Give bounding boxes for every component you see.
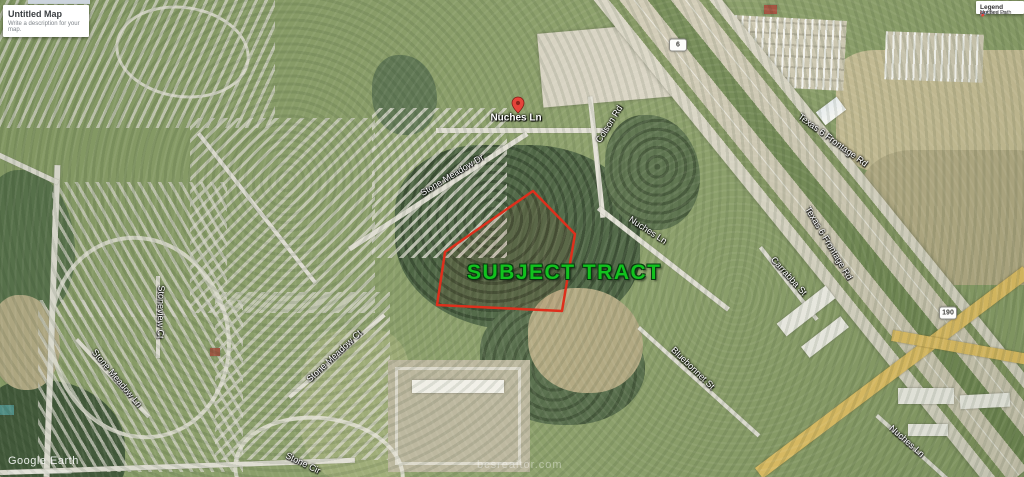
highway-shield: 190 <box>939 307 957 320</box>
street-label: Nuches Ln <box>490 113 541 124</box>
untitled-map-panel[interactable]: Untitled Map Write a description for you… <box>3 5 89 37</box>
cropped-toolbar-strip <box>28 0 90 4</box>
highway-shield: 6 <box>669 39 687 52</box>
map-title: Untitled Map <box>8 9 84 19</box>
annotation-layer <box>0 0 1024 477</box>
google-earth-watermark: Google Earth <box>8 455 79 467</box>
subject-tract-outline[interactable] <box>437 191 575 311</box>
map-pin-icon[interactable] <box>512 97 524 113</box>
site-watermark: bcsrealtor.com <box>477 459 563 471</box>
satellite-map-canvas[interactable]: Nuches LnColson RdStone Meadow DrStonevi… <box>0 0 1024 477</box>
subject-tract-label: SUBJECT TRACT <box>467 261 662 285</box>
legend-panel: Legend Nuches Ln Untitled Path <box>976 1 1024 14</box>
street-label: Stoneview Ct <box>156 285 167 338</box>
map-description-placeholder[interactable]: Write a description for your map. <box>8 21 84 33</box>
imagery-attribution <box>8 470 72 474</box>
legend-item-label: Untitled Path <box>980 10 1012 16</box>
